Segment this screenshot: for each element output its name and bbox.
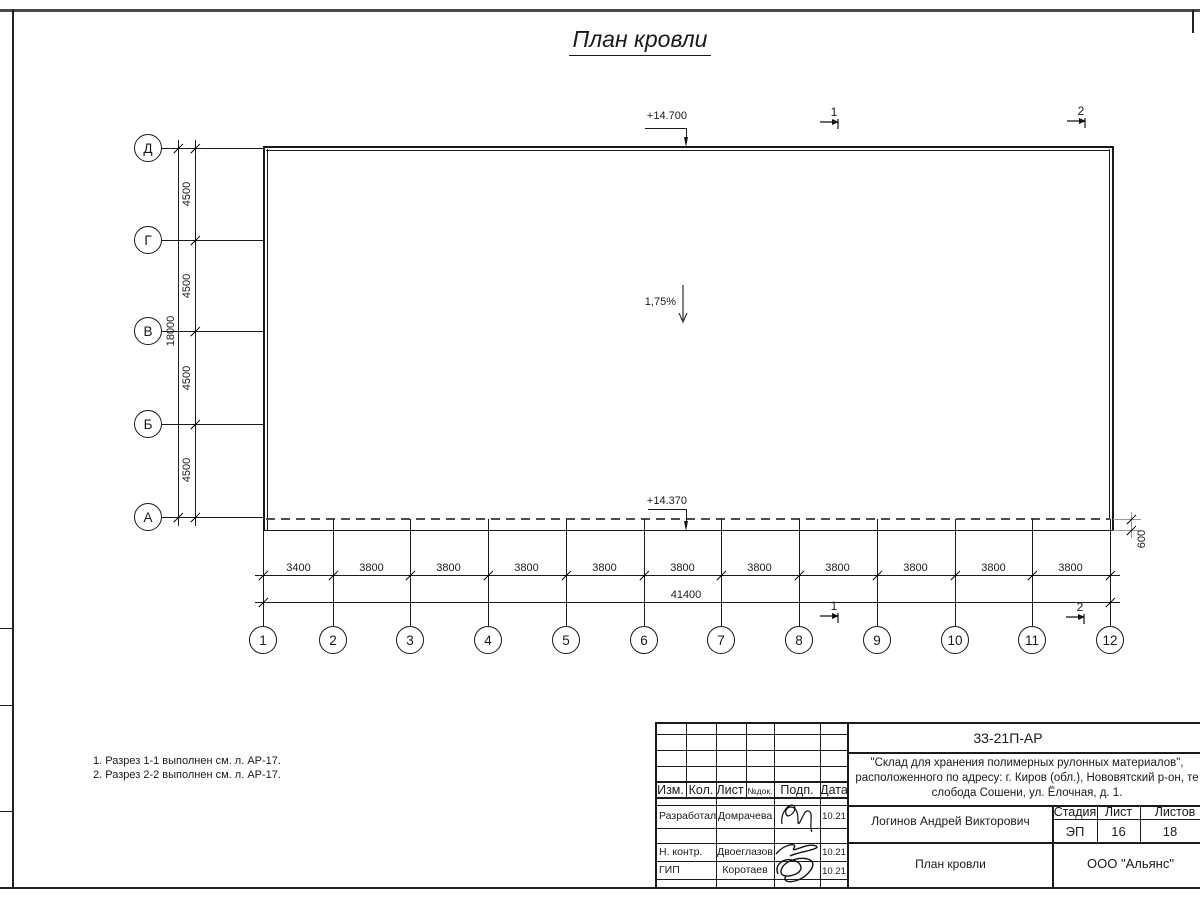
axis-label: 6	[640, 633, 648, 648]
drawing-sheet: План кровли Д Г В Б А 4500 4500 4500 450…	[0, 0, 1200, 900]
tb-row	[655, 734, 848, 735]
tb-name-domracheva: Домрачева	[716, 810, 774, 822]
axis-bubble-10: 10	[941, 626, 969, 654]
roof-edge-right-outer	[1112, 146, 1114, 530]
note-line-2: 2. Разрез 2-2 выполнен см. л. АР-17.	[93, 769, 281, 783]
axis-label: Д	[143, 141, 152, 156]
section-2-label-bottom: 2	[1070, 600, 1090, 614]
axis-label: 8	[795, 633, 803, 648]
axis-label: 9	[873, 633, 881, 648]
notes-block: 1. Разрез 1-1 выполнен см. л. АР-17. 2. …	[93, 755, 281, 782]
axis-label: 3	[406, 633, 414, 648]
axis-label: 2	[329, 633, 337, 648]
dim-label-3800: 3800	[1032, 562, 1109, 574]
elevation-bottom-arrowhead	[684, 521, 688, 531]
tb-project-line1: "Склад для хранения полимерных рулонных …	[848, 756, 1200, 771]
section-1-arrow-top	[820, 118, 844, 132]
dim-label-4500: 4500	[181, 450, 193, 490]
dim-label-4500: 4500	[181, 358, 193, 398]
eave-edge-line	[263, 530, 1113, 531]
axis-label: Б	[144, 417, 153, 432]
dim-label-3800: 3800	[955, 562, 1032, 574]
tb-role-gip: ГИП	[659, 864, 680, 876]
dim-line-segments	[255, 575, 1120, 576]
tb-row	[655, 766, 848, 767]
axis-label: А	[143, 510, 152, 525]
elevation-bottom-label: +14.370	[607, 495, 687, 507]
elevation-top-label: +14.700	[607, 110, 687, 122]
tb-name-korotaev: Коротаев	[716, 864, 774, 876]
signature-domracheva	[776, 798, 824, 836]
dim-label-3800: 3800	[721, 562, 798, 574]
frame-margin-tick	[0, 628, 12, 629]
tb-header-ndok: №док.	[746, 786, 774, 796]
axis-label: 10	[947, 633, 962, 648]
dim-label-3800: 3800	[410, 562, 487, 574]
roof-edge-top-outer	[263, 146, 1113, 148]
axis-bubble-12: 12	[1096, 626, 1124, 654]
tb-header-data: Дата	[820, 783, 848, 797]
tb-sheets-label: Листов	[1140, 805, 1200, 819]
axis-bubble-2: 2	[319, 626, 347, 654]
axis-bubble-7: 7	[707, 626, 735, 654]
axis-bubble-G: Г	[134, 226, 162, 254]
section-2-arrow-top	[1067, 117, 1091, 131]
tb-stage-label: Стадия	[1053, 805, 1097, 819]
tb-date: 10.21	[820, 811, 848, 822]
hidden-wall-line-axis-A	[266, 518, 1110, 520]
elevation-top-arrowhead	[684, 137, 688, 147]
tb-name-dvoeglazov: Двоеглазов	[716, 846, 774, 858]
dim-line-total	[255, 602, 1120, 603]
frame-margin-tick	[0, 811, 12, 812]
section-1-arrow-bottom	[820, 612, 844, 626]
page-title-text: План кровли	[569, 26, 712, 56]
axis-label: 4	[484, 633, 492, 648]
axis-bubble-B: Б	[134, 410, 162, 438]
roof-edge-left-outer	[263, 146, 265, 530]
axis-bubble-D: Д	[134, 134, 162, 162]
axis-bubble-V: В	[134, 317, 162, 345]
section-2-label-top: 2	[1071, 104, 1091, 118]
tb-project-line3: слобода Сошени, ул. Ёлочная, д. 1.	[848, 786, 1200, 801]
axis-label: 7	[717, 633, 725, 648]
axis-bubble-11: 11	[1018, 626, 1046, 654]
section-1-label-bottom: 1	[824, 599, 844, 613]
page-title: План кровли	[500, 26, 780, 53]
tb-role-nkontr: Н. контр.	[659, 846, 702, 858]
dim-label-3800: 3800	[799, 562, 876, 574]
dim-label-600: 600	[1136, 524, 1148, 554]
roof-edge-right-inner	[1109, 149, 1110, 519]
dim-label-4500: 4500	[181, 266, 193, 306]
tb-sheets-value: 18	[1140, 824, 1200, 839]
axis-bubble-3: 3	[396, 626, 424, 654]
tb-row	[847, 842, 1200, 844]
dim-label-3800: 3800	[877, 562, 954, 574]
tb-header-list: Лист	[714, 783, 746, 797]
axis-bubble-5: 5	[552, 626, 580, 654]
dim-label-18000: 18000	[165, 305, 177, 357]
axis-label: В	[143, 324, 152, 339]
tb-project-description: "Склад для хранения полимерных рулонных …	[848, 756, 1200, 801]
elevation-bottom-leader	[648, 509, 687, 510]
tb-role-razrabotal: Разработал	[659, 810, 716, 822]
axis-bubble-9: 9	[863, 626, 891, 654]
tb-doc-code: 33-21П-АР	[848, 730, 1168, 746]
dim-label-4500: 4500	[181, 174, 193, 214]
dim-line-4500	[195, 140, 196, 526]
tb-project-line2: расположенного по адресу: г. Киров (обл.…	[848, 771, 1200, 786]
axis-label: 12	[1102, 633, 1117, 648]
roof-edge-top-inner	[266, 150, 1110, 151]
tb-company: ООО "Альянс"	[1053, 856, 1200, 871]
dim-label-41400: 41400	[646, 589, 726, 601]
elevation-top-leader	[645, 128, 687, 129]
axis-bubble-4: 4	[474, 626, 502, 654]
slope-label: 1,75%	[626, 296, 676, 308]
slope-arrow	[677, 285, 689, 325]
frame-right-stub	[1192, 10, 1194, 33]
axis-label: 11	[1025, 633, 1039, 648]
axis-bubble-8: 8	[785, 626, 813, 654]
tb-stage-value: ЭП	[1053, 824, 1097, 839]
note-line-1: 1. Разрез 1-1 выполнен см. л. АР-17.	[93, 755, 281, 769]
ext-line-overhang-top	[1113, 519, 1141, 520]
axis-bubble-1: 1	[249, 626, 277, 654]
frame-margin-tick	[0, 705, 12, 706]
section-1-label-top: 1	[824, 105, 844, 119]
signature-korotaev	[768, 840, 826, 884]
frame-left-line	[12, 9, 14, 888]
tb-row	[847, 752, 1200, 754]
section-2-arrow-bottom	[1066, 613, 1090, 627]
roof-edge-left-inner	[267, 149, 268, 530]
dim-label-3800: 3800	[644, 562, 721, 574]
tb-header-podp: Подп.	[774, 783, 820, 797]
tb-top	[655, 722, 1200, 724]
frame-bottom-line	[0, 887, 1200, 889]
dim-line-600	[1131, 512, 1132, 538]
tb-header-izm: Изм.	[655, 783, 686, 797]
tb-drawing-name: План кровли	[848, 857, 1053, 871]
dim-label-3800: 3800	[488, 562, 565, 574]
dim-line-18000	[178, 140, 179, 526]
frame-top-line	[0, 9, 1200, 12]
axis-bubble-A: А	[134, 503, 162, 531]
axis-label: 5	[562, 633, 570, 648]
tb-row	[655, 750, 848, 751]
dim-label-3800: 3800	[566, 562, 643, 574]
tb-sheet-value: 16	[1097, 824, 1140, 839]
axis-label: Г	[144, 233, 151, 248]
tb-chief-name: Логинов Андрей Викторович	[848, 814, 1053, 828]
dim-label-3400: 3400	[260, 562, 337, 574]
tb-sheet-label: Лист	[1097, 805, 1140, 819]
dim-label-3800: 3800	[333, 562, 410, 574]
axis-bubble-6: 6	[630, 626, 658, 654]
axis-label: 1	[259, 633, 267, 648]
tb-header-kol: Кол.	[686, 783, 716, 797]
